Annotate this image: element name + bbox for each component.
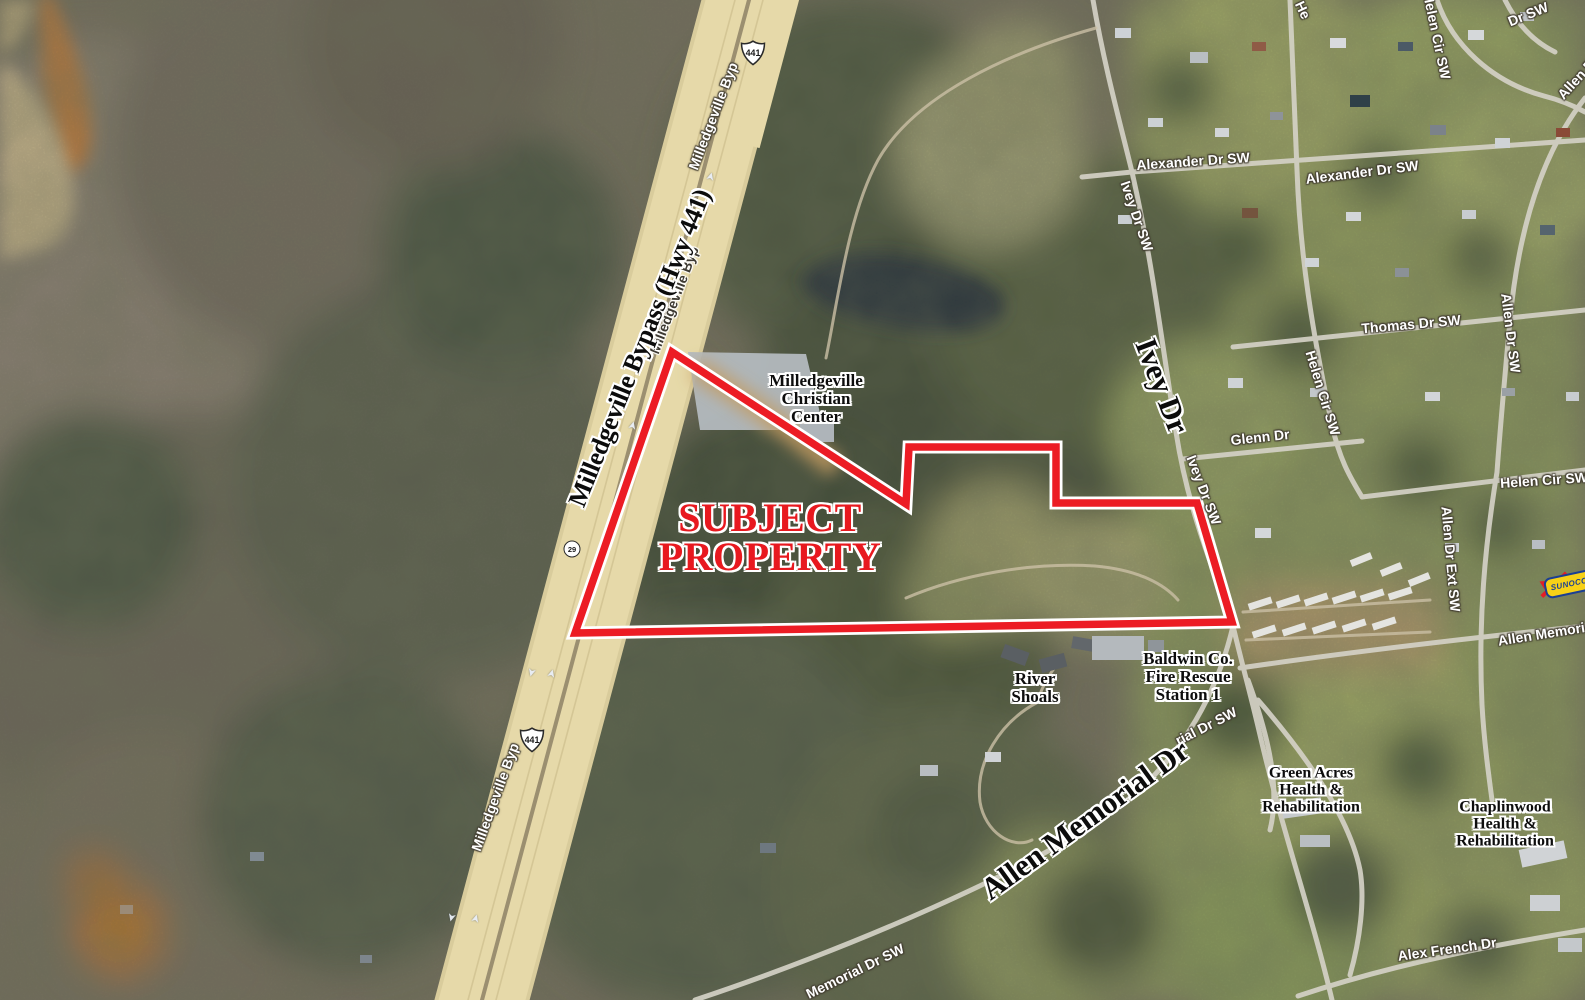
svg-text:441: 441 xyxy=(525,735,540,745)
aerial-property-map: ➤ ➤ ➤ ➤ ➤ ➤ 441 441 29 Milledgeville Byp… xyxy=(0,0,1585,1000)
fire-station-building xyxy=(1092,636,1144,660)
us-441-shield: 441 xyxy=(740,40,766,66)
aerial-imagery xyxy=(0,0,1585,1000)
svg-text:29: 29 xyxy=(568,545,576,554)
svg-text:441: 441 xyxy=(746,48,761,58)
route-29-shield: 29 xyxy=(563,540,581,558)
us-441-shield: 441 xyxy=(519,727,545,753)
